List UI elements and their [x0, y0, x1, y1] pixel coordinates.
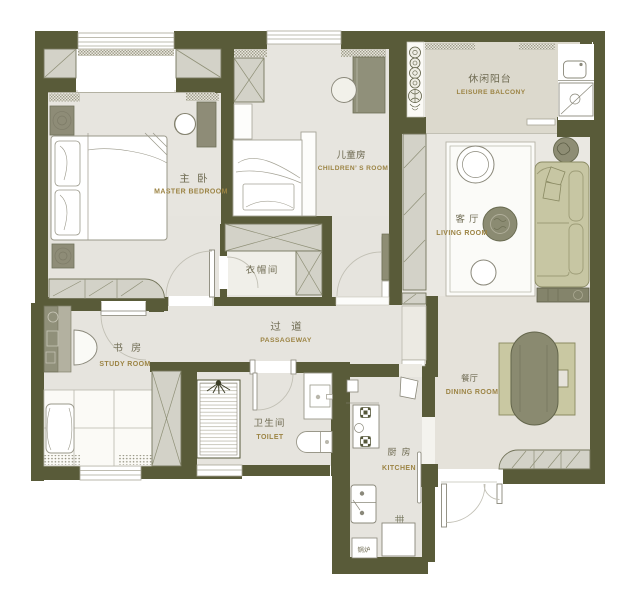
- svg-text:TOILET: TOILET: [256, 434, 283, 441]
- svg-text:MASTER BEDROOM: MASTER BEDROOM: [154, 189, 228, 196]
- svg-text:KITCHEN: KITCHEN: [382, 465, 416, 472]
- svg-text:PASSAGEWAY: PASSAGEWAY: [260, 337, 312, 344]
- svg-text:LEISURE BALCONY: LEISURE BALCONY: [456, 89, 525, 96]
- svg-text:LIVING ROOM: LIVING ROOM: [436, 230, 487, 237]
- svg-text:CHILDREN’ S ROOM: CHILDREN’ S ROOM: [318, 165, 389, 172]
- svg-text:DINING ROOM: DINING ROOM: [446, 389, 499, 396]
- svg-text:STUDY ROOM: STUDY ROOM: [99, 361, 150, 368]
